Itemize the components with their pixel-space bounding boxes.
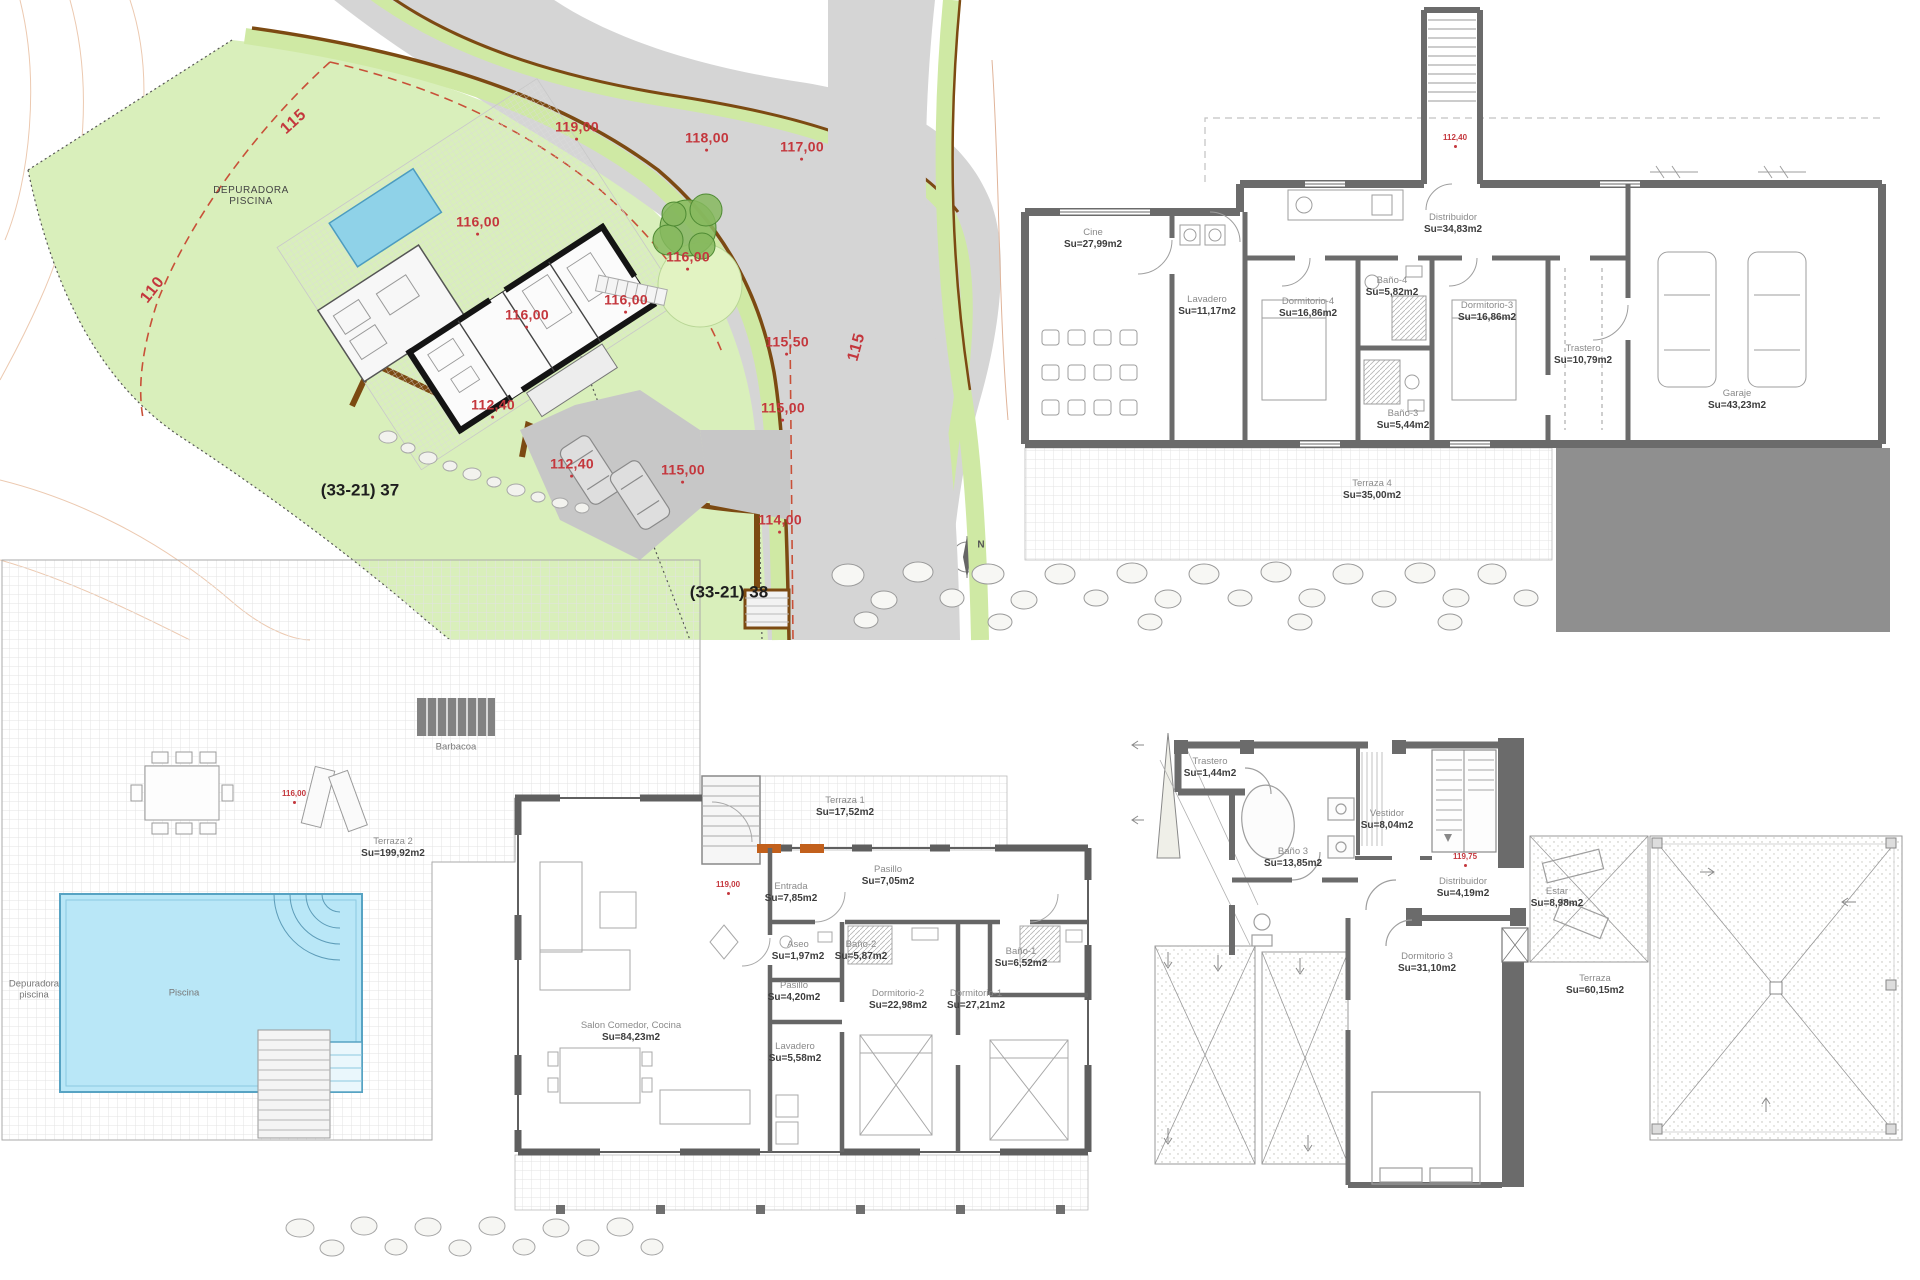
staircase xyxy=(1424,10,1480,184)
outer-walls xyxy=(1025,184,1882,444)
closet xyxy=(1362,752,1382,846)
barbacoa xyxy=(417,698,495,736)
door-accent xyxy=(800,844,824,853)
window-gaps xyxy=(1060,184,1640,444)
terraza4-tiles xyxy=(1025,448,1552,560)
lower-terrace-tiles xyxy=(515,1155,1088,1210)
interior-walls xyxy=(770,848,1088,1152)
plans-drawing xyxy=(0,0,1920,1280)
furniture xyxy=(540,802,1082,1144)
dark-block xyxy=(1556,448,1890,632)
terrace-frames xyxy=(1155,836,1902,1164)
entry-stairs xyxy=(702,776,760,864)
main-floor-plan xyxy=(2,560,1088,1256)
road-steps xyxy=(745,590,789,628)
architectural-drawing-sheet: 115110115119,00118,00117,00116,00116,001… xyxy=(0,0,1920,1280)
staircase xyxy=(1432,750,1496,852)
terraza1-tiles xyxy=(757,776,1007,850)
stones xyxy=(286,1217,663,1256)
upper-floor-plan xyxy=(1132,733,1902,1187)
furniture xyxy=(1042,166,1806,430)
window-lines xyxy=(1060,184,1640,444)
garden-steps xyxy=(258,1030,330,1138)
